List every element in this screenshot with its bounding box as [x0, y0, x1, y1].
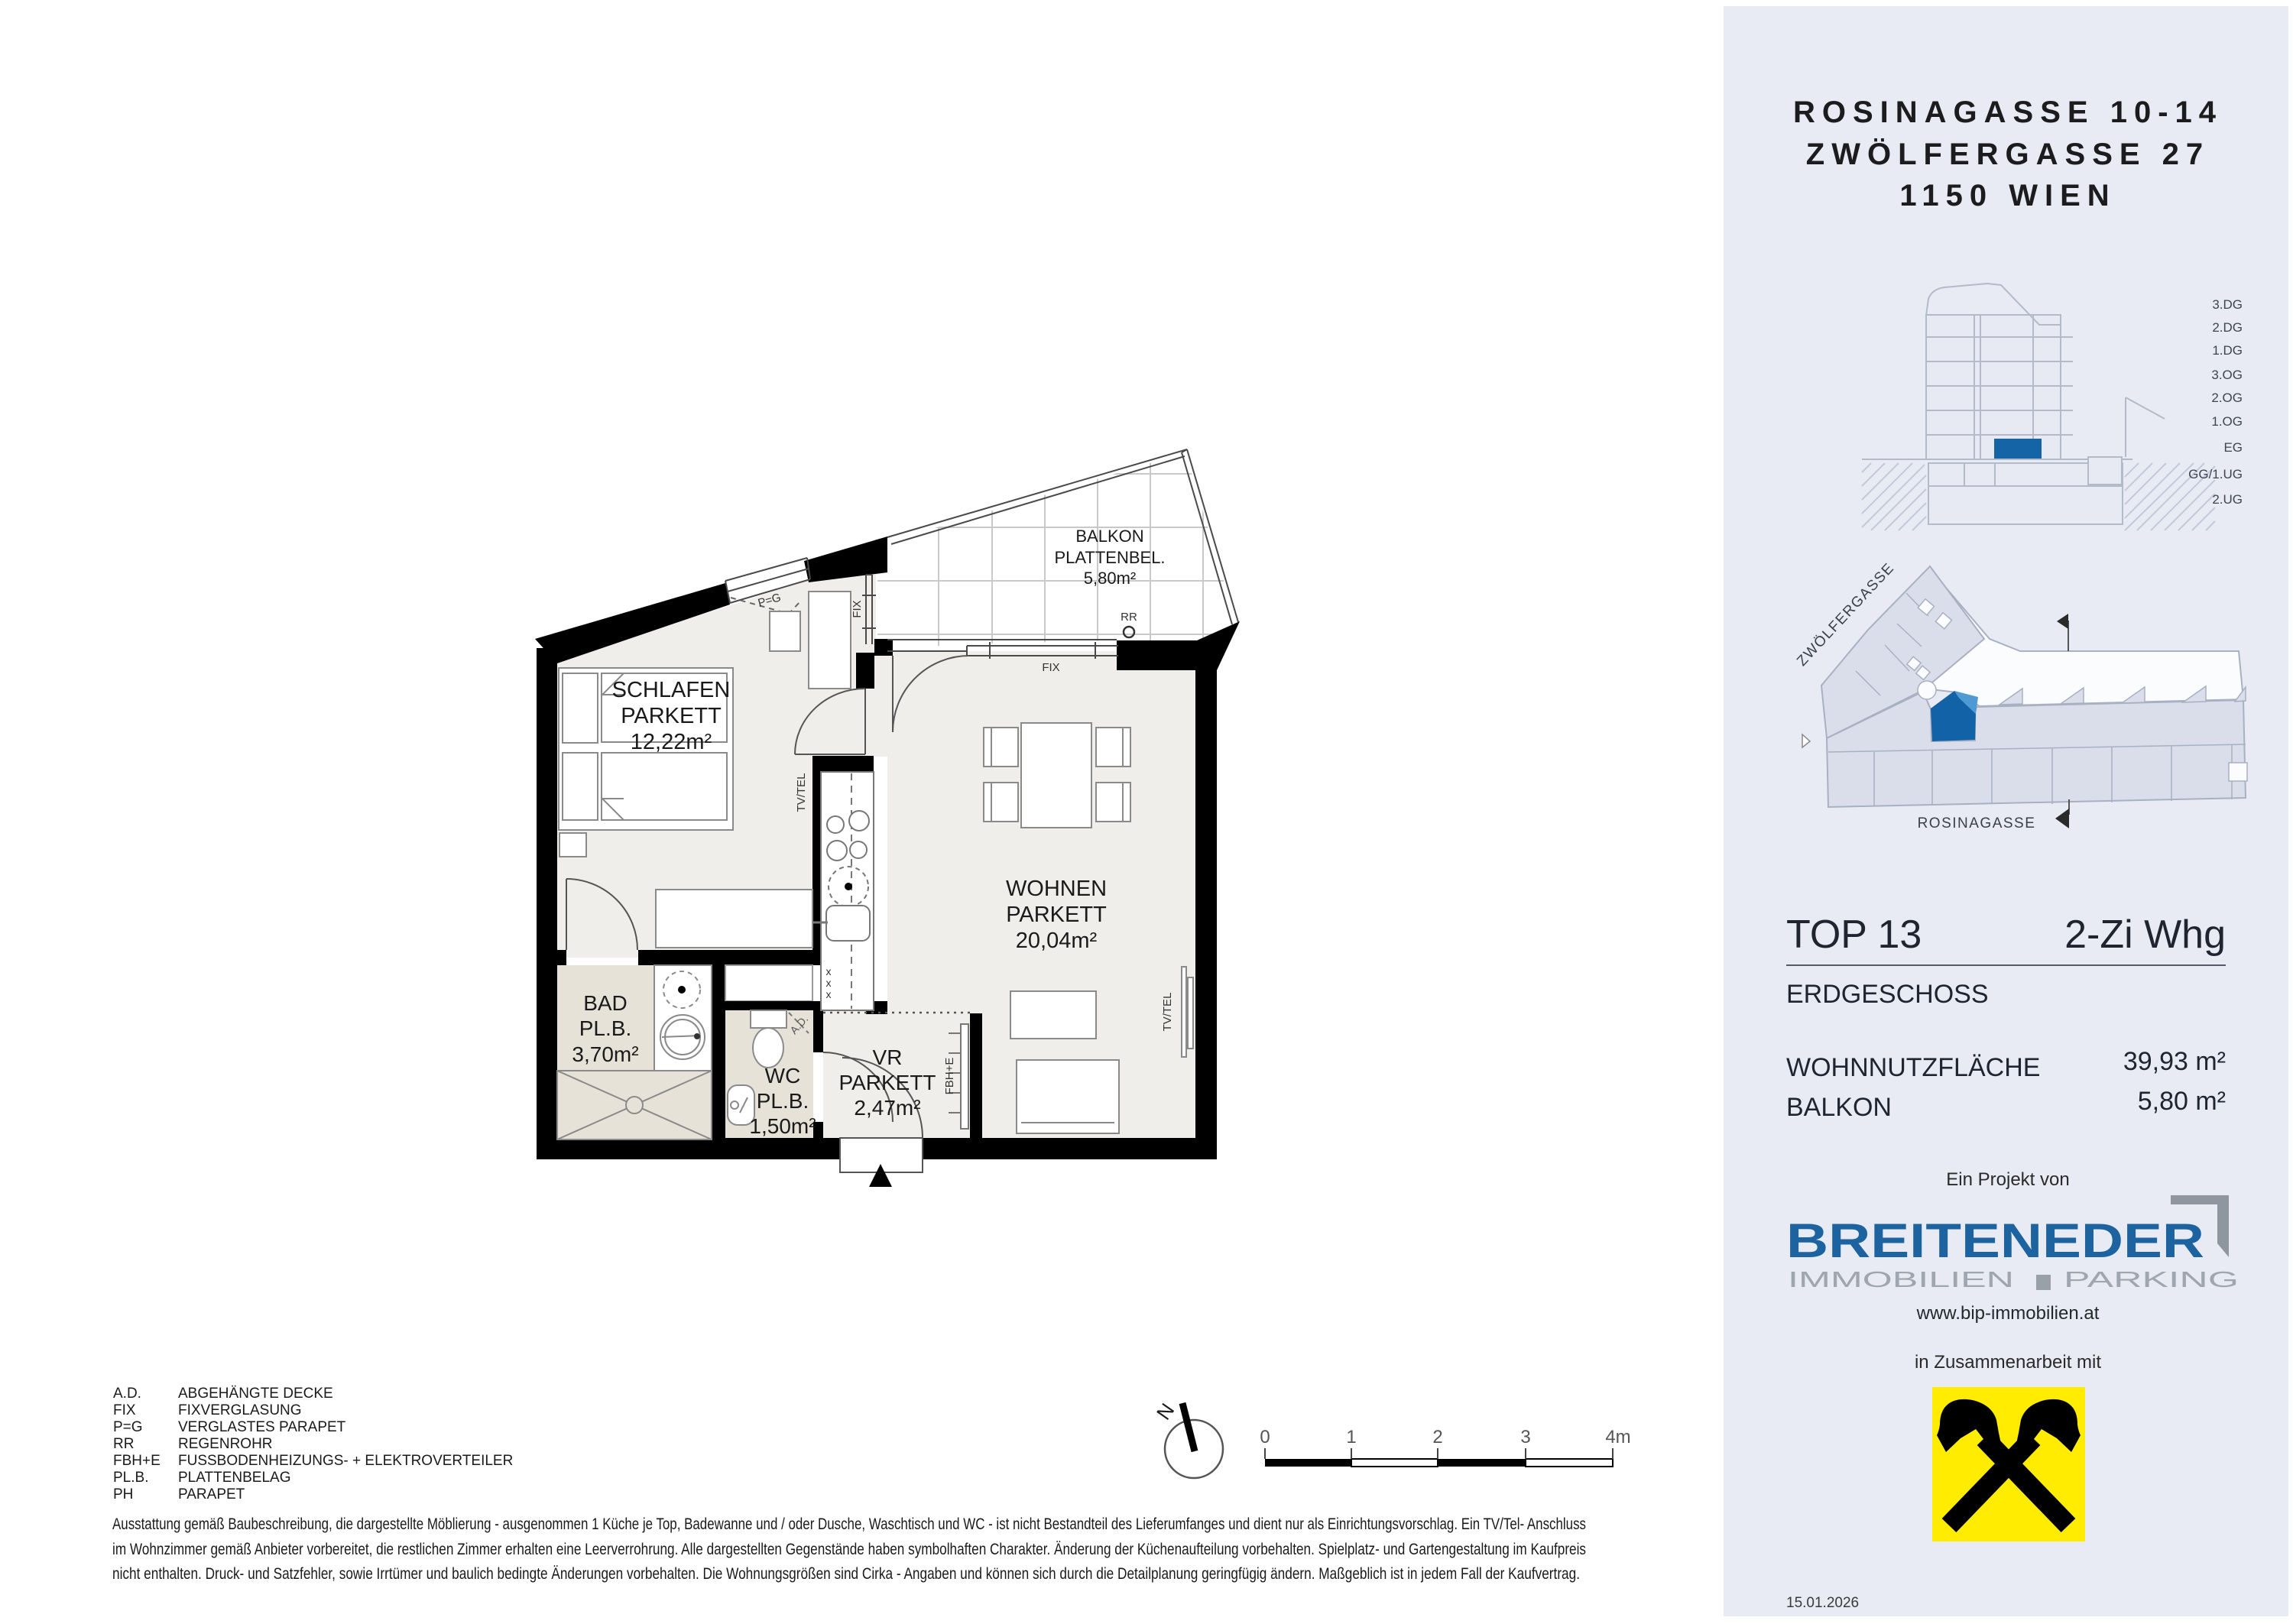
- svg-text:1,50m²: 1,50m²: [749, 1114, 816, 1138]
- svg-text:2.DG: 2.DG: [2212, 320, 2243, 335]
- svg-text:5,80m²: 5,80m²: [1084, 569, 1136, 588]
- svg-text:1.DG: 1.DG: [2212, 343, 2243, 358]
- svg-text:2: 2: [1432, 1427, 1442, 1447]
- svg-text:FIX: FIX: [1042, 661, 1059, 674]
- svg-text:PARKETT: PARKETT: [838, 1071, 936, 1094]
- svg-text:BREITENEDER: BREITENEDER: [1786, 1214, 2204, 1268]
- svg-text:FUSSBODENHEIZUNGS- + ELEKTROVE: FUSSBODENHEIZUNGS- + ELEKTROVERTEILER: [178, 1453, 513, 1469]
- svg-text:39,93 m²: 39,93 m²: [2123, 1047, 2226, 1076]
- svg-text:im Wohnzimmer gemäß Anbieter v: im Wohnzimmer gemäß Anbieter vorbereitet…: [112, 1541, 1586, 1558]
- svg-text:Ein Projekt von: Ein Projekt von: [1946, 1169, 2069, 1190]
- svg-text:WOHNNUTZFLÄCHE: WOHNNUTZFLÄCHE: [1786, 1053, 2040, 1082]
- svg-text:VR: VR: [873, 1045, 903, 1069]
- svg-text:PARAPET: PARAPET: [178, 1486, 245, 1502]
- svg-text:EG: EG: [2223, 440, 2243, 455]
- svg-text:ERDGESCHOSS: ERDGESCHOSS: [1786, 980, 1989, 1009]
- svg-text:1150 WIEN: 1150 WIEN: [1899, 179, 2116, 212]
- svg-text:PL.B.: PL.B.: [579, 1016, 631, 1040]
- svg-text:4m: 4m: [1605, 1427, 1630, 1447]
- svg-text:FBH+E: FBH+E: [943, 1058, 956, 1095]
- svg-text:VERGLASTES PARAPET: VERGLASTES PARAPET: [178, 1419, 346, 1435]
- svg-text:RR: RR: [113, 1436, 134, 1452]
- svg-text:PARKING: PARKING: [2064, 1268, 2239, 1292]
- svg-text:15.01.2026: 15.01.2026: [1786, 1595, 1859, 1611]
- svg-text:BALKON: BALKON: [1075, 527, 1143, 546]
- svg-text:20,04m²: 20,04m²: [1016, 929, 1098, 953]
- svg-text:x: x: [826, 977, 832, 989]
- svg-text:WC: WC: [765, 1064, 801, 1088]
- svg-text:3.DG: 3.DG: [2212, 297, 2243, 312]
- svg-text:PARKETT: PARKETT: [1006, 903, 1107, 927]
- svg-text:5,80 m²: 5,80 m²: [2138, 1087, 2226, 1116]
- svg-text:2,47m²: 2,47m²: [854, 1096, 920, 1120]
- svg-text:3: 3: [1520, 1427, 1530, 1447]
- svg-text:1: 1: [1346, 1427, 1356, 1447]
- svg-text:GG/1.UG: GG/1.UG: [2188, 467, 2243, 481]
- svg-text:2.OG: 2.OG: [2211, 391, 2243, 405]
- svg-text:PL.B.: PL.B.: [757, 1089, 809, 1113]
- svg-text:3.OG: 3.OG: [2211, 368, 2243, 382]
- svg-text:ROSINAGASSE: ROSINAGASSE: [1918, 815, 2036, 831]
- svg-text:BAD: BAD: [583, 991, 628, 1015]
- svg-text:Ausstattung gemäß Baubeschreib: Ausstattung gemäß Baubeschreibung, die d…: [112, 1515, 1586, 1533]
- svg-text:FIXVERGLASUNG: FIXVERGLASUNG: [178, 1402, 302, 1418]
- svg-text:FBH+E: FBH+E: [113, 1453, 161, 1469]
- svg-text:in Zusammenarbeit mit: in Zusammenarbeit mit: [1915, 1352, 2101, 1373]
- svg-text:RR: RR: [1121, 611, 1137, 624]
- svg-text:TV/TEL: TV/TEL: [795, 773, 808, 812]
- svg-text:ZWÖLFERGASSE 27: ZWÖLFERGASSE 27: [1806, 137, 2210, 171]
- svg-text:3,70m²: 3,70m²: [572, 1042, 638, 1066]
- svg-text:BALKON: BALKON: [1786, 1093, 1892, 1122]
- svg-text:12,22m²: 12,22m²: [631, 730, 712, 754]
- svg-text:IMMOBILIEN: IMMOBILIEN: [1788, 1268, 2014, 1292]
- svg-text:REGENROHR: REGENROHR: [178, 1436, 273, 1452]
- svg-text:SCHLAFEN: SCHLAFEN: [612, 678, 731, 702]
- svg-text:PLATTENBEL.: PLATTENBEL.: [1054, 548, 1165, 567]
- svg-text:x: x: [826, 965, 832, 977]
- svg-text:2-Zi Whg: 2-Zi Whg: [2064, 912, 2226, 957]
- svg-text:PH: PH: [113, 1486, 133, 1502]
- svg-text:P=G: P=G: [113, 1419, 143, 1435]
- svg-text:0: 0: [1260, 1427, 1270, 1447]
- svg-text:FIX: FIX: [851, 600, 864, 618]
- svg-text:2.UG: 2.UG: [2212, 492, 2243, 507]
- svg-text:PLATTENBELAG: PLATTENBELAG: [178, 1470, 290, 1486]
- svg-text:PL.B.: PL.B.: [113, 1470, 148, 1486]
- svg-text:www.bip-immobilien.at: www.bip-immobilien.at: [1916, 1303, 2100, 1324]
- svg-text:nicht enthalten. Druck- und Sa: nicht enthalten. Druck- und Satzfehler, …: [112, 1565, 1580, 1583]
- svg-text:TOP 13: TOP 13: [1786, 912, 1922, 957]
- svg-text:1.OG: 1.OG: [2211, 414, 2243, 429]
- svg-text:FIX: FIX: [113, 1402, 136, 1418]
- svg-text:x: x: [826, 988, 832, 1000]
- svg-text:TV/TEL: TV/TEL: [1161, 993, 1174, 1032]
- svg-text:ROSINAGASSE 10-14: ROSINAGASSE 10-14: [1793, 96, 2223, 129]
- svg-text:WOHNEN: WOHNEN: [1006, 877, 1107, 901]
- svg-text:ABGEHÄNGTE DECKE: ABGEHÄNGTE DECKE: [178, 1386, 333, 1402]
- svg-text:A.D.: A.D.: [113, 1386, 141, 1402]
- svg-text:PARKETT: PARKETT: [621, 704, 722, 728]
